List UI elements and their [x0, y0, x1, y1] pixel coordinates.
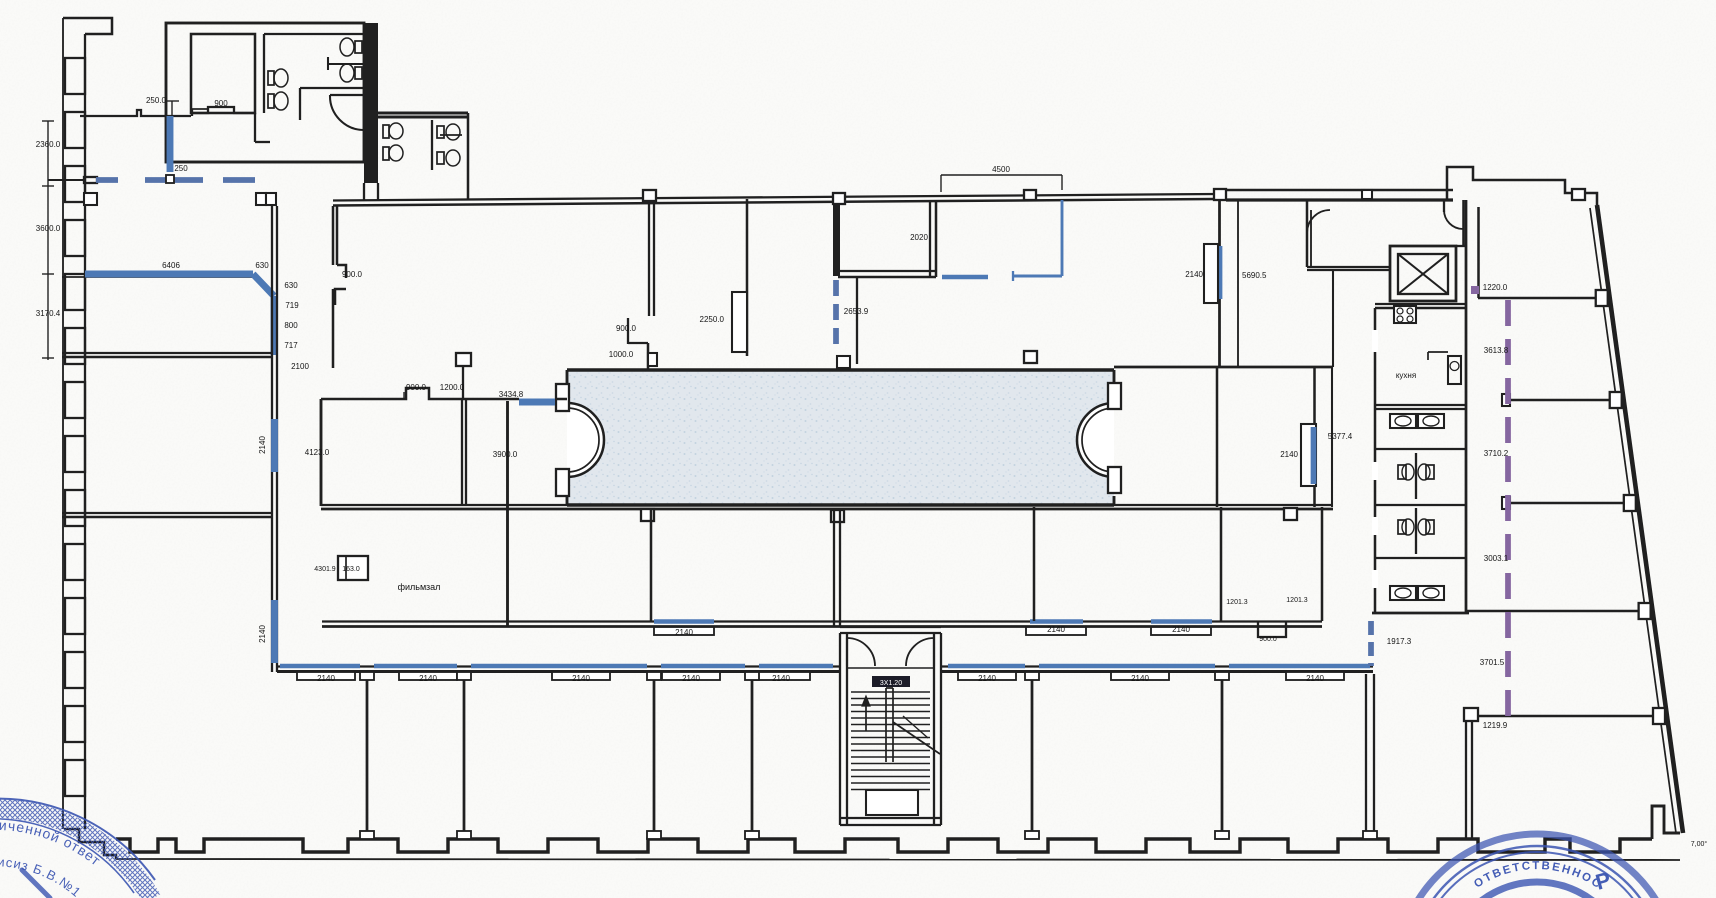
- svg-text:3434.8: 3434.8: [499, 390, 524, 399]
- svg-text:2140: 2140: [675, 628, 693, 637]
- svg-text:5377.4: 5377.4: [1328, 432, 1353, 441]
- svg-text:2140: 2140: [258, 625, 267, 643]
- svg-text:4500: 4500: [992, 165, 1010, 174]
- svg-text:5690.5: 5690.5: [1242, 271, 1267, 280]
- svg-text:2140: 2140: [572, 674, 590, 683]
- svg-text:3710.2: 3710.2: [1484, 449, 1509, 458]
- svg-text:2140: 2140: [1047, 625, 1065, 634]
- svg-text:2100: 2100: [291, 362, 309, 371]
- svg-text:250.0: 250.0: [146, 96, 167, 105]
- svg-text:4123.0: 4123.0: [305, 448, 330, 457]
- svg-text:630: 630: [255, 261, 269, 270]
- svg-text:900.0: 900.0: [1259, 636, 1277, 643]
- svg-text:2140: 2140: [317, 674, 335, 683]
- svg-text:фильмзал: фильмзал: [398, 582, 441, 592]
- svg-text:163.0: 163.0: [342, 566, 360, 573]
- svg-text:2140: 2140: [682, 674, 700, 683]
- svg-text:3613.8: 3613.8: [1484, 346, 1509, 355]
- svg-text:2140: 2140: [1185, 270, 1203, 279]
- svg-text:2140: 2140: [419, 674, 437, 683]
- svg-text:6406: 6406: [162, 261, 180, 270]
- svg-text:3701.5: 3701.5: [1480, 658, 1505, 667]
- svg-text:2140: 2140: [978, 674, 996, 683]
- svg-text:900.0: 900.0: [406, 383, 427, 392]
- svg-text:2140: 2140: [1280, 450, 1298, 459]
- svg-text:717: 717: [284, 341, 298, 350]
- svg-text:2250.0: 2250.0: [700, 315, 725, 324]
- svg-text:2140: 2140: [772, 674, 790, 683]
- svg-text:2020: 2020: [910, 233, 928, 242]
- svg-text:2140: 2140: [1131, 674, 1149, 683]
- svg-text:1201.3: 1201.3: [1226, 599, 1248, 606]
- svg-text:2140: 2140: [1172, 625, 1190, 634]
- svg-text:2653.9: 2653.9: [844, 307, 869, 316]
- svg-text:7,00°: 7,00°: [1691, 840, 1708, 848]
- svg-text:3X1.20: 3X1.20: [880, 680, 902, 687]
- svg-text:250: 250: [174, 164, 188, 173]
- svg-text:3003.1: 3003.1: [1484, 554, 1509, 563]
- svg-text:2360.0: 2360.0: [36, 140, 61, 149]
- svg-text:630: 630: [284, 281, 298, 290]
- svg-text:кухня: кухня: [1396, 371, 1416, 380]
- svg-text:3900.0: 3900.0: [493, 450, 518, 459]
- svg-text:1201.3: 1201.3: [1286, 597, 1308, 604]
- svg-text:719: 719: [285, 301, 299, 310]
- svg-text:1200.0: 1200.0: [440, 383, 465, 392]
- svg-text:900: 900: [214, 99, 228, 108]
- svg-text:1917.3: 1917.3: [1387, 637, 1412, 646]
- svg-text:1219.9: 1219.9: [1483, 721, 1508, 730]
- svg-text:800: 800: [284, 321, 298, 330]
- svg-text:3170.4: 3170.4: [36, 309, 61, 318]
- svg-text:2140: 2140: [258, 436, 267, 454]
- svg-text:900.0: 900.0: [342, 270, 363, 279]
- svg-text:900.0: 900.0: [616, 324, 637, 333]
- svg-text:4301.9: 4301.9: [314, 566, 336, 573]
- svg-text:1000.0: 1000.0: [609, 350, 634, 359]
- svg-text:3600.0: 3600.0: [36, 224, 61, 233]
- svg-text:2140: 2140: [1306, 674, 1324, 683]
- svg-text:1220.0: 1220.0: [1483, 283, 1508, 292]
